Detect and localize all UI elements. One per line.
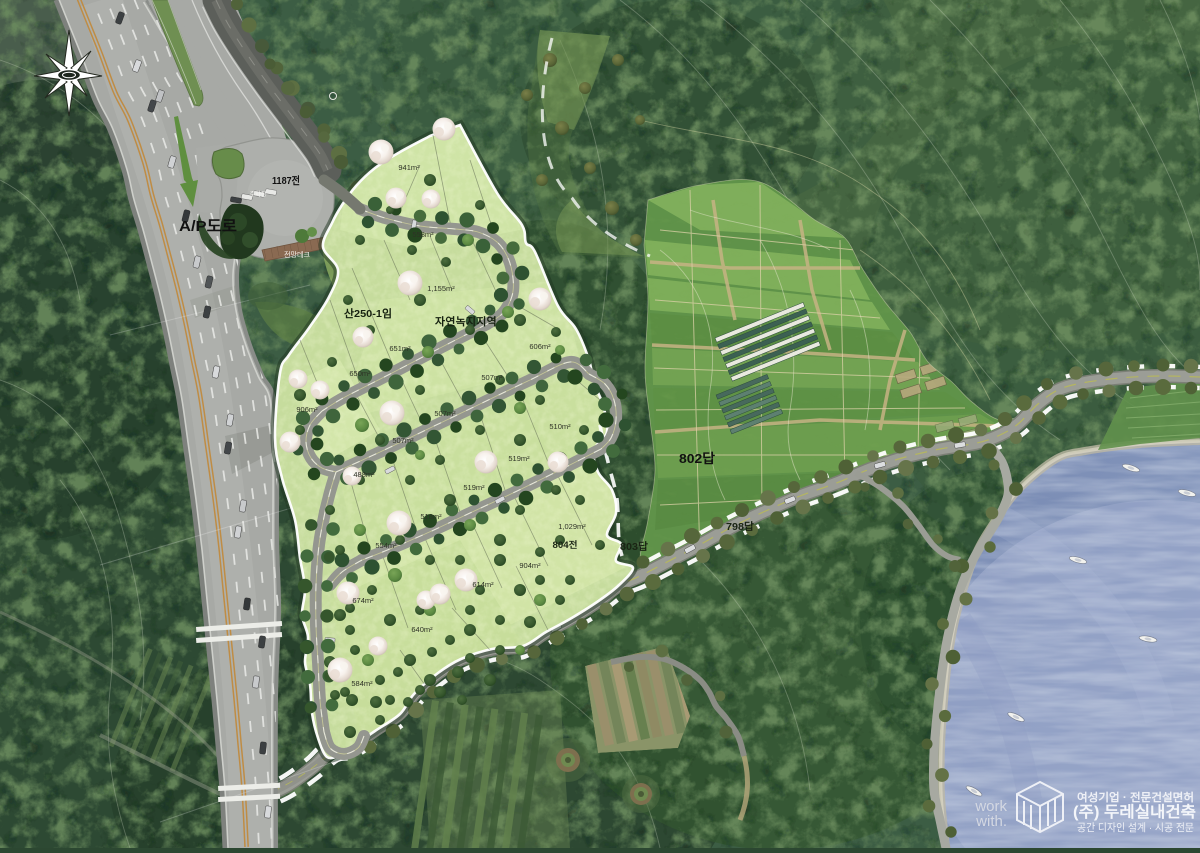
svg-text:674m²: 674m² (352, 596, 374, 605)
svg-text:with.: with. (975, 813, 1007, 830)
svg-text:941m²: 941m² (398, 163, 420, 172)
svg-text:1,029m²: 1,029m² (558, 522, 586, 531)
svg-text:906m²: 906m² (296, 405, 318, 414)
svg-text:804전: 804전 (553, 539, 578, 550)
svg-text:606m²: 606m² (529, 342, 551, 351)
svg-text:488m²: 488m² (353, 470, 375, 479)
svg-text:554m²: 554m² (375, 541, 397, 550)
svg-text:507m²: 507m² (481, 373, 503, 382)
svg-text:510m²: 510m² (549, 422, 571, 431)
svg-text:산250-1임: 산250-1임 (344, 307, 392, 320)
svg-text:1,155m²: 1,155m² (427, 284, 455, 293)
svg-text:A/P도로: A/P도로 (179, 218, 237, 235)
svg-text:519m²: 519m² (508, 454, 530, 463)
svg-text:798답: 798답 (726, 521, 755, 533)
svg-text:802답: 802답 (679, 451, 715, 466)
svg-text:(주) 두레실내건축: (주) 두레실내건축 (1073, 803, 1196, 821)
svg-text:주차장: 주차장 (250, 189, 267, 198)
svg-text:1187전: 1187전 (272, 174, 300, 187)
svg-text:여성기업 · 전문건설면허: 여성기업 · 전문건설면허 (1077, 790, 1194, 804)
svg-text:803답: 803답 (620, 541, 649, 553)
svg-text:전망데크: 전망데크 (284, 250, 311, 259)
svg-text:507m²: 507m² (434, 409, 456, 418)
svg-text:558m²: 558m² (412, 230, 434, 239)
svg-text:519m²: 519m² (463, 483, 485, 492)
svg-text:공간 디자인 설계 · 시공 전문: 공간 디자인 설계 · 시공 전문 (1077, 822, 1194, 834)
svg-text:자연녹지지역: 자연녹지지역 (435, 315, 497, 328)
svg-text:651m²: 651m² (389, 344, 411, 353)
svg-text:904m²: 904m² (519, 561, 541, 570)
svg-text:614m²: 614m² (472, 580, 494, 589)
svg-text:640m²: 640m² (411, 625, 433, 634)
svg-text:518m²: 518m² (420, 512, 442, 521)
svg-text:507m²: 507m² (392, 436, 414, 445)
svg-text:584m²: 584m² (351, 679, 373, 688)
svg-text:650m²: 650m² (349, 369, 371, 378)
